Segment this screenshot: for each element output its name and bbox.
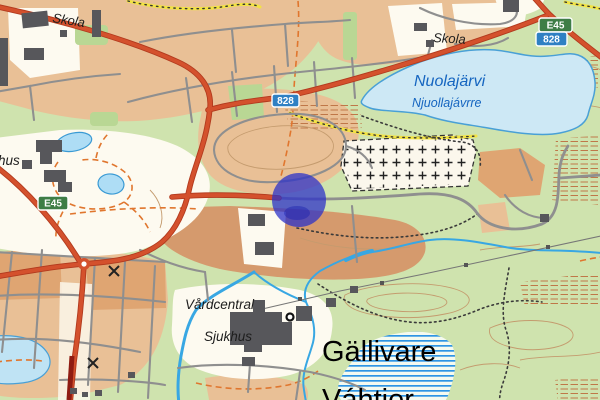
topographic-map[interactable]: E45 828 E45 828 Skola Skola hus Nuolajär… xyxy=(0,0,600,400)
road-sign-828-mid: 828 xyxy=(272,94,299,107)
road-sign-828-ne-text: 828 xyxy=(543,35,560,46)
label-vardcentral: Vårdcentral xyxy=(185,297,255,312)
road-sign-e45-left-text: E45 xyxy=(44,199,62,210)
label-town-sami: Váhtjer xyxy=(322,384,414,400)
roundabout xyxy=(78,258,90,270)
road-sign-e45-left: E45 xyxy=(38,196,68,210)
road-sign-828-ne: 828 xyxy=(536,32,567,46)
road-sign-828-mid-text: 828 xyxy=(277,96,294,107)
chimney-symbol xyxy=(287,314,294,321)
road-sign-e45-ne: E45 xyxy=(539,18,572,32)
road-sign-e45-ne-text: E45 xyxy=(547,21,565,32)
label-lake-name: Nuolajärvi xyxy=(414,73,486,90)
label-hus: hus xyxy=(0,153,20,168)
cemetery xyxy=(341,135,476,191)
incident-marker xyxy=(272,173,326,227)
map-canvas: E45 828 E45 828 Skola Skola hus Nuolajär… xyxy=(0,0,600,400)
label-town: Gällivare xyxy=(322,336,436,368)
label-lake-name-sami: Njuollajávrre xyxy=(412,96,482,110)
label-sjukhus: Sjukhus xyxy=(204,329,252,344)
label-skola-ne: Skola xyxy=(433,30,466,47)
